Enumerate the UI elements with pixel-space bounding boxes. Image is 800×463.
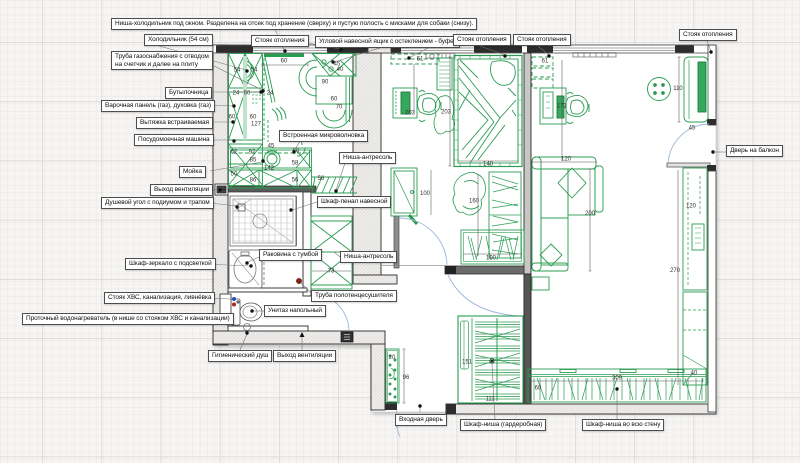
svg-text:142: 142 xyxy=(264,166,275,172)
svg-text:270: 270 xyxy=(670,268,681,274)
svg-text:90: 90 xyxy=(322,80,329,86)
svg-text:96: 96 xyxy=(403,375,410,381)
svg-text:309: 309 xyxy=(612,376,623,382)
svg-text:203: 203 xyxy=(405,111,416,117)
svg-text:60: 60 xyxy=(331,97,338,103)
svg-text:73: 73 xyxy=(328,269,335,275)
svg-text:203: 203 xyxy=(441,110,452,116)
svg-text:45: 45 xyxy=(689,126,696,132)
svg-text:151: 151 xyxy=(462,360,473,366)
svg-text:60: 60 xyxy=(535,386,542,392)
svg-text:45: 45 xyxy=(268,144,275,150)
svg-text:86: 86 xyxy=(250,178,257,184)
svg-text:70: 70 xyxy=(336,105,343,111)
svg-text:61: 61 xyxy=(542,59,549,65)
svg-text:62: 62 xyxy=(231,150,238,156)
svg-text:120: 120 xyxy=(686,204,697,210)
svg-text:60: 60 xyxy=(250,115,257,121)
svg-text:50: 50 xyxy=(231,172,238,178)
svg-text:56: 56 xyxy=(292,178,299,184)
svg-text:110: 110 xyxy=(673,86,683,92)
svg-text:24: 24 xyxy=(233,91,240,97)
svg-text:40: 40 xyxy=(691,371,698,377)
svg-text:60: 60 xyxy=(229,115,236,121)
svg-text:60: 60 xyxy=(281,59,288,65)
svg-text:61: 61 xyxy=(417,57,424,63)
svg-text:20: 20 xyxy=(389,355,396,361)
svg-text:160: 160 xyxy=(469,199,480,205)
svg-text:24: 24 xyxy=(267,91,274,97)
svg-text:56: 56 xyxy=(318,176,325,182)
svg-text:58: 58 xyxy=(292,161,299,167)
svg-text:120: 120 xyxy=(561,157,572,163)
svg-text:140: 140 xyxy=(483,162,494,168)
svg-text:200: 200 xyxy=(585,211,596,217)
svg-text:127: 127 xyxy=(251,122,262,128)
svg-text:54: 54 xyxy=(251,68,258,74)
svg-text:172: 172 xyxy=(557,104,568,110)
svg-text:60: 60 xyxy=(244,91,251,97)
svg-text:100: 100 xyxy=(420,191,431,197)
svg-text:92: 92 xyxy=(249,150,256,156)
svg-text:40: 40 xyxy=(337,67,344,73)
svg-text:100: 100 xyxy=(486,256,497,262)
svg-text:85: 85 xyxy=(250,158,257,164)
